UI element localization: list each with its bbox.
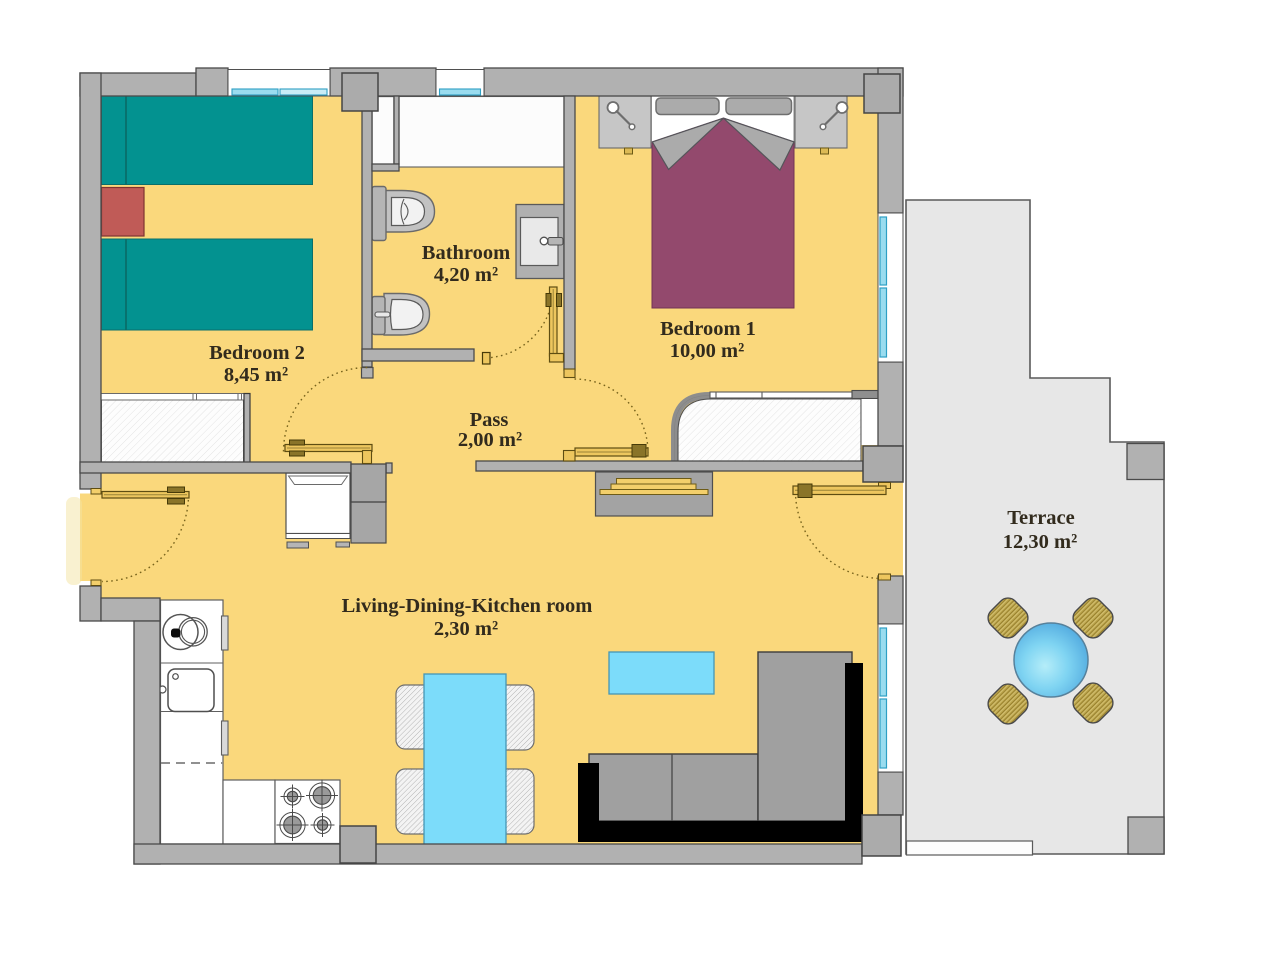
svg-text:Terrace: Terrace [1007,507,1075,529]
svg-text:Bedroom 2: Bedroom 2 [209,342,305,364]
svg-text:Bathroom: Bathroom [422,242,510,264]
svg-text:Pass: Pass [470,409,509,431]
svg-text:12,30 m²: 12,30 m² [1003,531,1077,553]
svg-text:Living-Dining-Kitchen room: Living-Dining-Kitchen room [342,595,593,617]
svg-text:2,00 m²: 2,00 m² [458,429,522,451]
svg-text:4,20 m²: 4,20 m² [434,264,498,286]
svg-text:2,30 m²: 2,30 m² [434,618,498,640]
svg-text:10,00 m²: 10,00 m² [670,340,744,362]
svg-text:Bedroom 1: Bedroom 1 [660,318,756,340]
svg-text:8,45 m²: 8,45 m² [224,364,288,386]
